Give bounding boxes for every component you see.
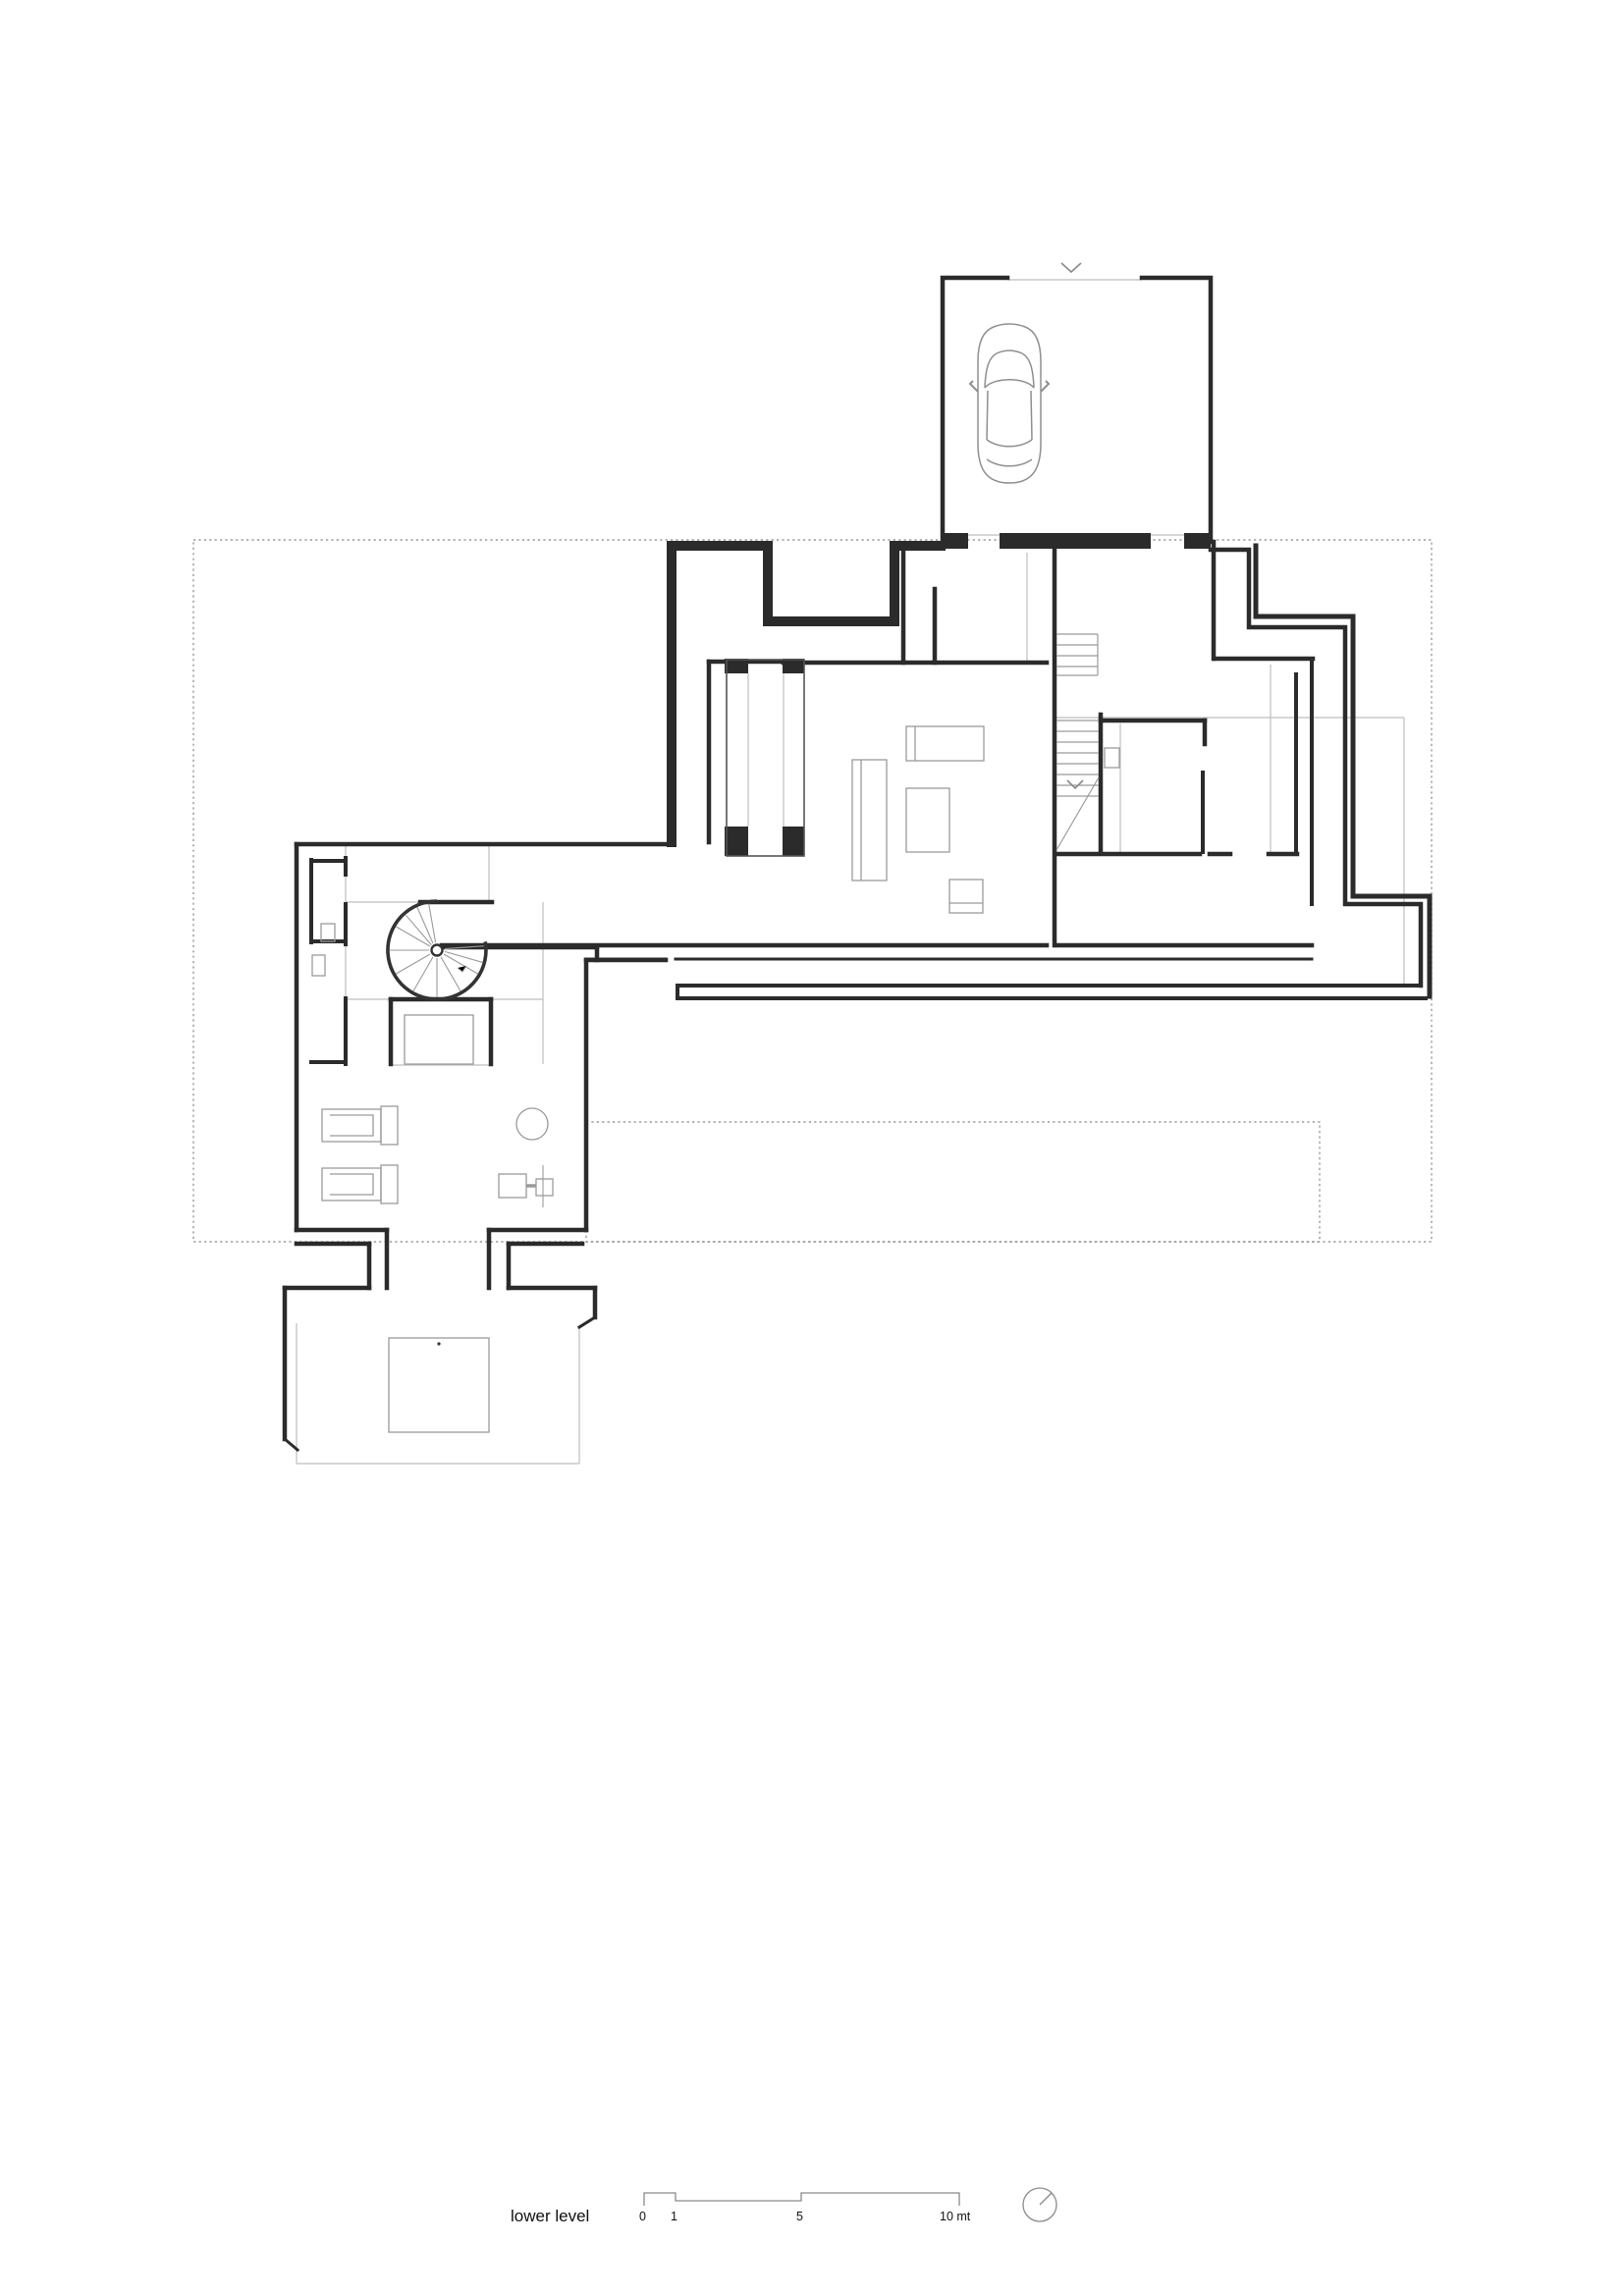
exercise-machine: [499, 1174, 526, 1198]
stair-direction-chevron-icon: [1067, 780, 1083, 788]
site-boundary-dotted: [193, 540, 1432, 1242]
north-indicator-icon: [1023, 2188, 1056, 2221]
terrace-pool-dotted-rect: [586, 1122, 1320, 1242]
lounger-1: [322, 1109, 381, 1142]
wc-fixture-2: [312, 955, 325, 976]
living-room-furniture: [852, 726, 1119, 913]
stair-treads: [1056, 634, 1099, 850]
spiral-staircase: [388, 901, 486, 999]
lower-room-walls: [285, 1288, 595, 1450]
interior-partitions: [709, 542, 1313, 945]
garage-walls: [943, 278, 1211, 542]
side-table: [949, 880, 983, 913]
car-mirror-left: [970, 381, 978, 392]
wc-fixture-1: [321, 924, 335, 941]
floor-plan-svg: lower level 0 1 5 10 mt: [0, 0, 1624, 2296]
lower-room-basin: [389, 1338, 489, 1432]
stair-break-line: [1056, 777, 1099, 850]
scale-tick-0: 0: [639, 2210, 646, 2223]
drawing-title: lower level: [511, 2207, 589, 2225]
sofa-horizontal: [906, 726, 984, 761]
lounger-2: [322, 1168, 381, 1201]
car-mirror-right: [1041, 381, 1049, 392]
site-boundary-rect: [193, 540, 1432, 1242]
walls: [285, 278, 1430, 1450]
stool: [516, 1108, 548, 1140]
fixture-cabinet: [1105, 748, 1119, 768]
legend: lower level 0 1 5 10 mt: [511, 2188, 1056, 2225]
south-terrace-walls: [442, 945, 1426, 998]
drain-dot: [437, 1342, 440, 1345]
north-wall-and-courtyard: [672, 546, 941, 842]
drawing-sheet: lower level 0 1 5 10 mt: [0, 0, 1624, 2296]
car-icon: [970, 324, 1049, 483]
lift-car-outline: [405, 1015, 473, 1064]
east-step-wall: [1211, 546, 1430, 996]
north-stair-treads: [1056, 634, 1098, 675]
scale-tick-1: 1: [671, 2210, 677, 2223]
direction-markers: [1061, 263, 1083, 788]
spiral-direction-arrow: [458, 966, 466, 972]
overlay-floor-lines: [297, 280, 1404, 1464]
scale-tick-10: 10 mt: [940, 2210, 971, 2223]
glazing-piers: [725, 659, 804, 856]
coffee-table: [906, 788, 949, 852]
scale-tick-5: 5: [796, 2210, 803, 2223]
sofa-vertical: [852, 760, 887, 881]
west-wing-walls: [297, 844, 672, 1288]
scale-bar-icon: [644, 2193, 959, 2206]
garage-entry-chevron-icon: [1061, 263, 1081, 272]
spiral-center-post: [432, 945, 443, 956]
